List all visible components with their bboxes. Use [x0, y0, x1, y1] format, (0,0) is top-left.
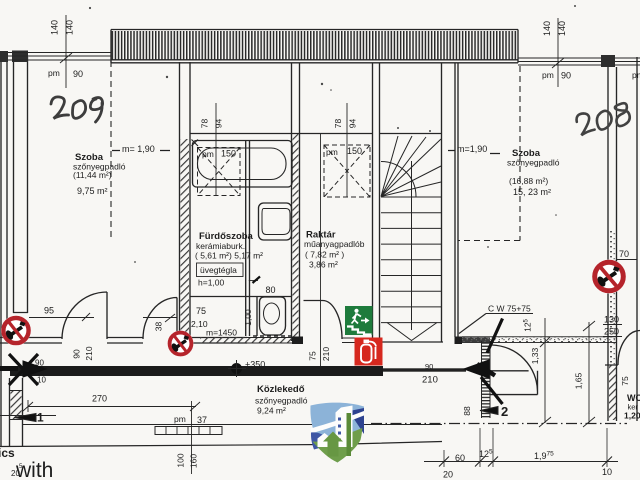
svg-text:pm: pm [326, 147, 338, 157]
svg-text:Közlekedő: Közlekedő [257, 384, 305, 395]
svg-text:+350: +350 [245, 360, 265, 370]
svg-text:70: 70 [619, 249, 629, 259]
svg-text:ics: ics [0, 446, 15, 460]
svg-text:9,24 m²: 9,24 m² [257, 406, 286, 416]
svg-text:(16,88 m²): (16,88 m²) [509, 176, 548, 186]
svg-text:pm: pm [542, 70, 554, 80]
svg-text:1,65: 1,65 [574, 372, 584, 389]
svg-text:üvegtégla: üvegtégla [200, 265, 237, 275]
svg-text:210: 210 [321, 347, 331, 361]
svg-text:140: 140 [542, 21, 552, 36]
svg-text:( 7,82 m² ): ( 7,82 m² ) [305, 250, 344, 260]
svg-text:with: with [15, 459, 53, 480]
svg-text:37: 37 [197, 415, 207, 425]
svg-text:140: 140 [557, 21, 567, 36]
svg-text:150: 150 [221, 149, 236, 159]
svg-text:1,33: 1,33 [530, 347, 540, 364]
svg-text:78: 78 [200, 119, 210, 129]
svg-text:1,00: 1,00 [243, 309, 253, 326]
svg-text:210: 210 [84, 346, 94, 360]
svg-text:(11,44 m²): (11,44 m²) [73, 170, 112, 180]
svg-text:m= 1,90: m= 1,90 [122, 144, 155, 154]
svg-text:m=1450: m=1450 [206, 328, 237, 338]
svg-text:160: 160 [189, 454, 199, 468]
svg-text:90: 90 [35, 359, 44, 368]
svg-text:9,75 m²: 9,75 m² [77, 186, 108, 196]
svg-text:60: 60 [455, 453, 465, 463]
svg-text:75: 75 [308, 351, 318, 361]
svg-text:270: 270 [92, 394, 107, 404]
svg-text:1: 1 [37, 411, 44, 425]
svg-text:38: 38 [154, 322, 164, 332]
svg-text:műanyagpadlób: műanyagpadlób [304, 239, 365, 249]
svg-text:90: 90 [73, 69, 83, 79]
svg-text:pm: pm [48, 68, 60, 78]
svg-text:pm: pm [174, 414, 186, 424]
svg-text:m=1,90: m=1,90 [457, 144, 487, 154]
svg-text:95: 95 [44, 306, 54, 316]
svg-text:szőnyegpadló: szőnyegpadló [255, 396, 308, 406]
svg-text:pm: pm [202, 149, 214, 159]
svg-text:90: 90 [72, 349, 82, 359]
svg-text:90: 90 [425, 362, 433, 371]
svg-text:75: 75 [620, 376, 630, 386]
svg-text:140: 140 [65, 20, 75, 35]
svg-text:h=1,00: h=1,00 [198, 278, 225, 288]
svg-text:szőnyegpadló: szőnyegpadló [507, 158, 560, 168]
svg-text:75: 75 [196, 306, 206, 316]
svg-text:10: 10 [37, 376, 46, 385]
svg-text:90: 90 [561, 71, 571, 81]
svg-text:pm: pm [632, 70, 640, 80]
svg-text:210: 210 [422, 375, 438, 386]
svg-text:15, 23 m²: 15, 23 m² [513, 187, 551, 197]
svg-text:100: 100 [176, 453, 186, 467]
svg-text:20: 20 [443, 470, 453, 480]
svg-text:80: 80 [266, 285, 276, 295]
svg-text:250: 250 [604, 327, 619, 337]
svg-text:140: 140 [50, 20, 60, 35]
svg-text:WC: WC [627, 393, 640, 403]
svg-text:94: 94 [348, 119, 358, 129]
svg-text:2: 2 [501, 404, 508, 419]
svg-text:kerámiaburk.: kerámiaburk. [196, 241, 245, 251]
svg-text:78: 78 [333, 119, 343, 129]
svg-text:88: 88 [462, 406, 472, 416]
svg-text:10: 10 [602, 467, 612, 477]
svg-text:150: 150 [347, 146, 362, 156]
svg-text:3,86 m²: 3,86 m² [309, 260, 338, 270]
svg-text:( 5,61 m²) 5,17 m²: ( 5,61 m²) 5,17 m² [195, 251, 263, 261]
svg-text:130: 130 [604, 315, 619, 325]
svg-text:C W 75+75: C W 75+75 [488, 304, 531, 314]
svg-text:94: 94 [214, 119, 224, 129]
svg-text:1,20: 1,20 [624, 411, 640, 421]
